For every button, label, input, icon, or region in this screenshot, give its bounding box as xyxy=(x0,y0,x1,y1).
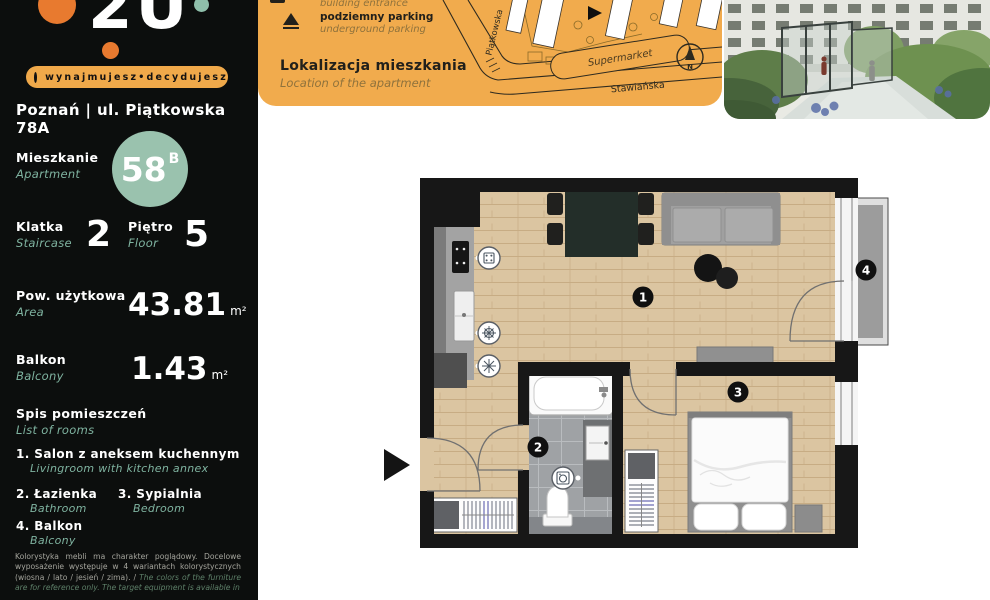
room-1-pl: Salon z aneksem kuchennym xyxy=(34,447,239,461)
floor-label-en: Floor xyxy=(128,236,158,250)
bed xyxy=(688,412,792,532)
bathroom-sink xyxy=(583,420,612,497)
street-stawianska: Stawiańska xyxy=(610,80,665,96)
bedroom-window xyxy=(835,382,858,445)
hood-icon xyxy=(478,322,500,344)
balcony-value: 1.43 xyxy=(131,354,208,385)
bathtub xyxy=(529,372,613,415)
bedroom-wardrobe xyxy=(625,450,658,532)
floor-label-pl: Piętro xyxy=(128,219,173,234)
address: Poznań | ul. Piątkowska 78A xyxy=(16,101,258,137)
room-4-num: 4. xyxy=(16,519,30,533)
room-1-num: 1. xyxy=(16,447,30,461)
staircase-label-pl: Klatka xyxy=(16,219,64,234)
room-2-num: 2. xyxy=(16,487,30,501)
rooms-title-en: List of rooms xyxy=(16,423,94,437)
area-value-row: 43.81 m² xyxy=(128,290,247,321)
compass-n: N xyxy=(687,63,693,71)
coffee-table-small xyxy=(716,267,738,289)
windows xyxy=(835,198,858,445)
map-supermarket: Supermarket xyxy=(549,33,691,81)
floor-value: 5 xyxy=(184,214,209,255)
area-label-en: Area xyxy=(16,305,44,319)
balcony-label-en: Balcony xyxy=(16,369,64,383)
footnote: Kolorystyka mebli ma charakter poglądowy… xyxy=(15,552,241,594)
oven-icon xyxy=(478,247,500,269)
cooktop xyxy=(452,241,469,273)
legend-entrance-en: building entrance xyxy=(320,0,408,9)
area-value: 43.81 xyxy=(128,290,226,321)
logo-dot-orange-small xyxy=(102,42,119,59)
label-balcony: 4 xyxy=(862,264,870,278)
courtyard-photo-art xyxy=(724,0,990,119)
area-unit: m² xyxy=(230,304,247,318)
fridge-icon xyxy=(478,355,500,377)
apartment-number-badge: 58B xyxy=(112,131,188,207)
location-panel: building entrance podziemny parking unde… xyxy=(258,0,722,106)
map-hatches xyxy=(486,58,500,72)
room-item-3-en: Bedroom xyxy=(133,502,185,515)
apartment-number: 58 xyxy=(121,150,167,189)
room-item-2-en: Bathroom xyxy=(30,502,87,515)
building-entrance-icon xyxy=(270,0,285,3)
brand-tagline: wynajmujesz•decydujesz xyxy=(45,72,228,83)
balcony-value-row: 1.43 m² xyxy=(131,354,228,385)
dining-table xyxy=(565,188,638,257)
underground-parking-icon xyxy=(283,13,299,25)
room-item-3: 3. Sypialnia xyxy=(118,487,202,501)
sofa xyxy=(662,193,780,245)
brand-logo: 2U xyxy=(88,0,191,44)
washer-icon xyxy=(552,467,574,489)
room-4-pl: Balkon xyxy=(34,519,82,533)
apartment-label-pl: Mieszkanie xyxy=(16,150,98,165)
floor-plan: 1 2 3 4 xyxy=(400,165,900,565)
sidebar: 2U wynajmujesz•decydujesz Poznań | ul. P… xyxy=(0,0,258,600)
logo-dot-orange-large xyxy=(38,0,76,24)
staircase-value: 2 xyxy=(86,214,111,255)
apartment-location-marker xyxy=(588,6,602,20)
label-bathroom: 2 xyxy=(534,441,542,455)
courtyard-photo xyxy=(724,0,990,119)
rooms-title-pl: Spis pomieszczeń xyxy=(16,406,147,421)
legend-parking-en: underground parking xyxy=(320,24,426,35)
nightstand xyxy=(795,505,822,532)
label-bedroom: 3 xyxy=(734,386,742,400)
room-3-pl: Sypialnia xyxy=(136,487,202,501)
underground-parking-icon-base xyxy=(283,27,299,29)
label-living: 1 xyxy=(639,291,647,305)
room-item-4: 4. Balkon xyxy=(16,519,83,533)
area-label-pl: Pow. użytkowa xyxy=(16,288,126,303)
room-item-1: 1. Salon z aneksem kuchennym xyxy=(16,447,240,461)
balcony-door xyxy=(835,281,858,341)
pillow-right xyxy=(742,504,786,530)
tagline-dot-icon xyxy=(34,72,37,83)
balcony-label-pl: Balkon xyxy=(16,352,66,367)
hall-wardrobe xyxy=(430,498,517,532)
pillow-left xyxy=(694,504,738,530)
room-item-1-en: Livingroom with kitchen annex xyxy=(30,462,208,475)
apartment-label-en: Apartment xyxy=(16,167,80,181)
room-item-2: 2. Łazienka xyxy=(16,487,97,501)
entrance-opening xyxy=(420,438,434,491)
brand-tagline-pill: wynajmujesz•decydujesz xyxy=(26,66,228,88)
balcony-unit: m² xyxy=(212,368,229,382)
living-window xyxy=(835,198,858,281)
apartment-card: 2U wynajmujesz•decydujesz Poznań | ul. P… xyxy=(0,0,990,600)
room-2-pl: Łazienka xyxy=(34,487,97,501)
location-title-en: Location of the apartment xyxy=(280,76,430,90)
staircase-label-en: Staircase xyxy=(16,236,72,250)
room-3-num: 3. xyxy=(118,487,132,501)
site-map: Supermarket N Stawiańska Piątkowska xyxy=(428,0,722,106)
logo-dot-teal xyxy=(194,0,209,12)
room-item-4-en: Balcony xyxy=(30,534,76,547)
legend-parking-pl: podziemny parking xyxy=(320,11,433,23)
